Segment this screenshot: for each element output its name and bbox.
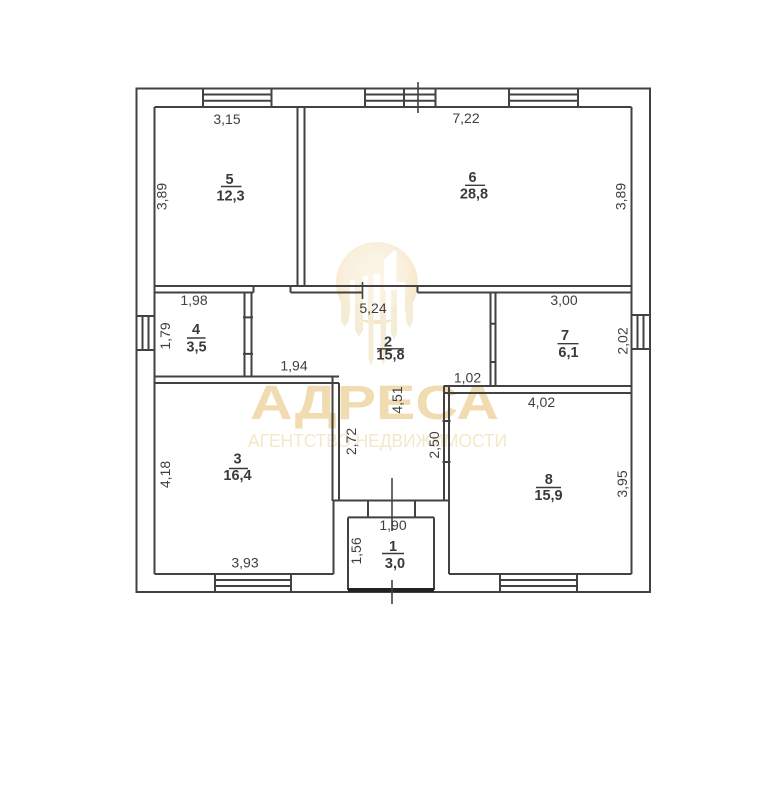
svg-text:4: 4 [192,322,200,338]
svg-text:15,8: 15,8 [376,348,404,364]
svg-text:15,9: 15,9 [534,488,562,504]
svg-text:3,93: 3,93 [231,555,258,571]
svg-text:3,89: 3,89 [154,183,170,210]
svg-text:3,95: 3,95 [614,470,630,497]
svg-text:2,50: 2,50 [426,431,442,458]
svg-text:2,72: 2,72 [343,428,359,455]
svg-text:1,02: 1,02 [454,370,481,386]
svg-text:4,02: 4,02 [528,394,555,410]
svg-text:5: 5 [225,172,233,188]
svg-text:1,90: 1,90 [379,517,406,533]
svg-text:АГЕНТСТВО НЕДВИЖИМОСТИ: АГЕНТСТВО НЕДВИЖИМОСТИ [248,430,507,451]
svg-text:7: 7 [561,328,569,344]
svg-text:7,22: 7,22 [452,110,479,126]
svg-text:3,00: 3,00 [550,292,577,308]
svg-text:6: 6 [468,170,476,186]
svg-text:3,89: 3,89 [613,183,629,210]
svg-text:6,1: 6,1 [558,345,578,361]
svg-text:4,18: 4,18 [157,461,173,488]
svg-text:1: 1 [389,539,397,555]
svg-text:8: 8 [545,472,553,488]
svg-text:5,24: 5,24 [359,300,386,316]
svg-text:16,4: 16,4 [223,468,251,484]
svg-text:1,98: 1,98 [180,292,207,308]
svg-text:12,3: 12,3 [216,189,244,205]
svg-text:3: 3 [233,452,241,468]
svg-text:1,79: 1,79 [157,322,173,349]
svg-text:28,8: 28,8 [460,187,488,203]
svg-text:4,51: 4,51 [389,386,405,413]
svg-text:2,02: 2,02 [615,327,631,354]
svg-text:3,0: 3,0 [385,556,405,572]
svg-text:1,94: 1,94 [280,358,307,374]
svg-text:1,56: 1,56 [348,537,364,564]
svg-text:3,15: 3,15 [213,111,240,127]
svg-text:3,5: 3,5 [186,340,206,356]
